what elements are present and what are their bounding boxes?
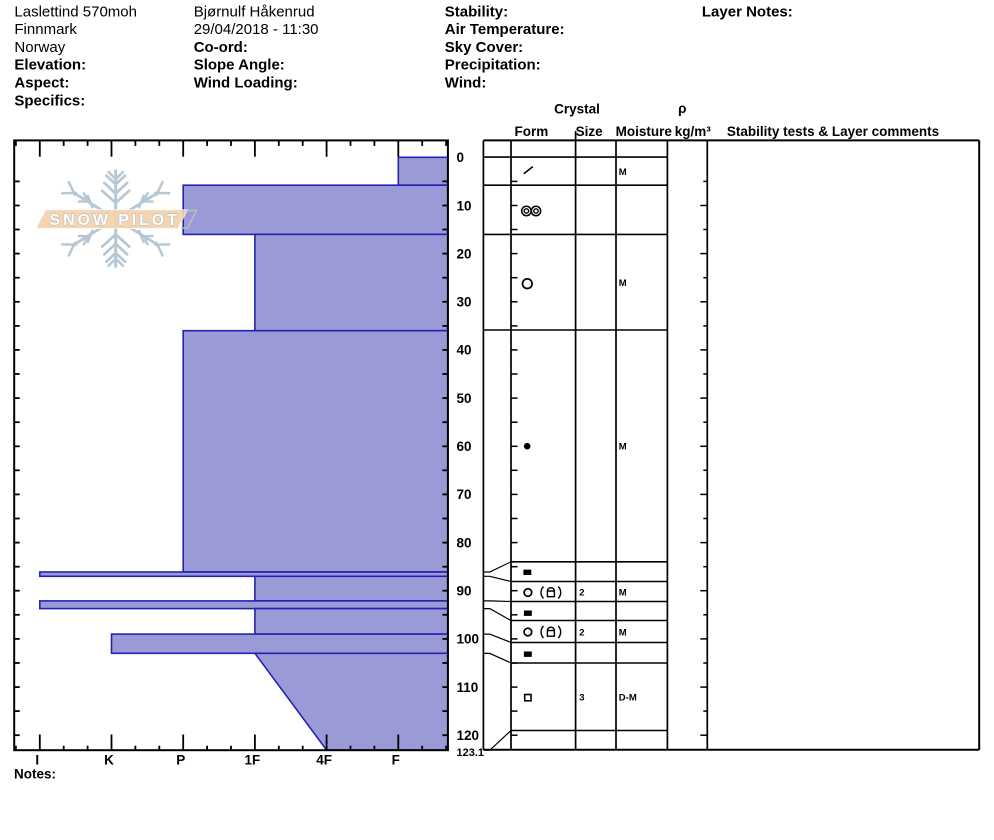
svg-text:Finnmark: Finnmark [14,21,77,38]
svg-text:Form: Form [515,124,549,139]
svg-text:2: 2 [579,587,584,598]
svg-text:I: I [35,753,39,768]
svg-text:123.1: 123.1 [457,747,485,759]
svg-text:Elevation:: Elevation: [14,57,86,74]
svg-text:30: 30 [457,295,472,310]
svg-text:Wind:: Wind: [445,75,487,92]
svg-text:kg/m³: kg/m³ [675,124,712,139]
svg-text:Slope Angle:: Slope Angle: [194,57,285,74]
svg-text:SNOW PILOT: SNOW PILOT [50,212,180,229]
svg-text:3: 3 [579,693,584,704]
svg-text:M: M [619,627,627,638]
svg-text:K: K [104,753,114,768]
svg-text:P: P [176,753,185,768]
svg-text:Specifics:: Specifics: [14,92,85,109]
svg-text:10: 10 [457,198,472,213]
svg-text:D-M: D-M [619,693,637,704]
svg-text:0: 0 [457,150,465,165]
svg-text:Bjørnulf Håkenrud: Bjørnulf Håkenrud [194,3,315,20]
svg-text:Sky Cover:: Sky Cover: [445,39,523,56]
svg-text:Notes:: Notes: [14,766,56,781]
svg-text:Stability tests & Layer commen: Stability tests & Layer comments [727,124,939,139]
svg-text:4F: 4F [316,753,332,768]
svg-text:2: 2 [579,627,584,638]
svg-text:Aspect:: Aspect: [14,75,69,92]
svg-text:Norway: Norway [14,39,65,56]
svg-text:F: F [392,753,400,768]
svg-text:40: 40 [457,343,472,358]
svg-text:Stability:: Stability: [445,3,508,20]
svg-text:Wind Loading:: Wind Loading: [194,75,298,92]
svg-text:80: 80 [457,535,472,550]
svg-text:M: M [619,442,627,453]
svg-text:100: 100 [457,632,480,647]
svg-text:Precipitation:: Precipitation: [445,57,541,74]
svg-text:29/04/2018 - 11:30: 29/04/2018 - 11:30 [194,21,319,38]
svg-text:M: M [619,278,627,289]
svg-text:M: M [619,167,627,178]
svg-text:Laslettind 570moh: Laslettind 570moh [14,3,137,20]
svg-text:50: 50 [457,391,472,406]
svg-text:Co-ord:: Co-ord: [194,39,248,56]
svg-text:1F: 1F [245,753,261,768]
svg-text:ρ: ρ [678,101,686,116]
svg-text:70: 70 [457,487,472,502]
svg-text:Size: Size [576,124,604,139]
svg-text:Air Temperature:: Air Temperature: [445,21,565,38]
svg-text:60: 60 [457,439,472,454]
svg-text:Crystal: Crystal [554,101,600,116]
svg-text:20: 20 [457,246,472,261]
svg-text:Moisture: Moisture [616,124,673,139]
svg-text:110: 110 [457,680,479,695]
svg-text:120: 120 [457,728,480,743]
svg-text:90: 90 [457,584,472,599]
svg-text:Layer Notes:: Layer Notes: [702,3,793,20]
svg-text:M: M [619,587,627,598]
